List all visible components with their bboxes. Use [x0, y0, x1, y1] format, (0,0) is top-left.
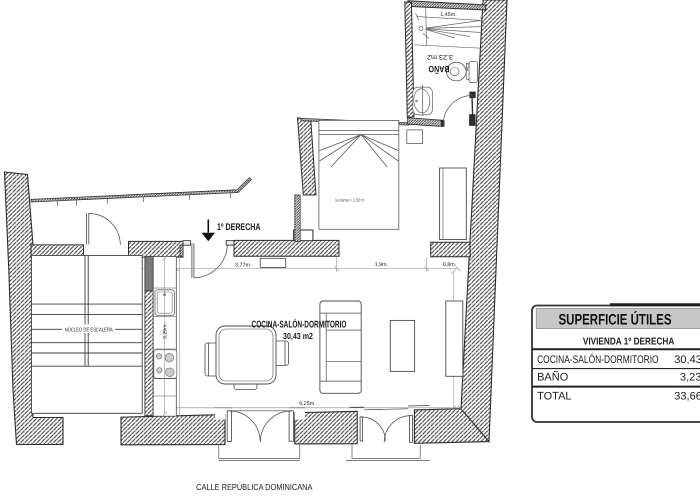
svg-text:30,43 m: 30,43 m	[674, 354, 700, 366]
svg-text:VIVIENDA 1º DERECHA: VIVIENDA 1º DERECHA	[583, 336, 675, 347]
svg-text:3,29m.: 3,29m.	[162, 323, 168, 339]
svg-text:33,66 m: 33,66 m	[674, 390, 700, 402]
svg-text:1,9m.: 1,9m.	[375, 262, 388, 268]
svg-text:BAÑO: BAÑO	[537, 371, 569, 384]
svg-text:1,45m.: 1,45m.	[440, 12, 456, 18]
svg-text:TOTAL: TOTAL	[537, 390, 571, 402]
svg-text:3,23 m: 3,23 m	[680, 372, 700, 384]
svg-text:CALLE REPÚBLICA DOMINICANA: CALLE REPÚBLICA DOMINICANA	[196, 482, 312, 492]
svg-text:COCINA-SALÓN-DORMITORIO: COCINA-SALÓN-DORMITORIO	[537, 353, 659, 366]
svg-text:COCINA-SALÓN-DORMITORIO: COCINA-SALÓN-DORMITORIO	[252, 319, 347, 331]
svg-text:3,23 m2: 3,23 m2	[427, 53, 453, 60]
svg-text:la cama = 1,50 m: la cama = 1,50 m	[336, 198, 365, 203]
svg-text:6,25m.: 6,25m.	[299, 401, 315, 407]
svg-text:3,77m.: 3,77m.	[235, 262, 251, 268]
svg-text:2,2m.: 2,2m.	[465, 62, 470, 72]
svg-text:0,8m.: 0,8m.	[443, 262, 456, 268]
svg-text:1º DERECHA: 1º DERECHA	[217, 222, 261, 233]
svg-text:SUPERFICIE ÚTILES: SUPERFICIE ÚTILES	[559, 310, 672, 328]
svg-text:NÚCLEO DE ESCALERA: NÚCLEO DE ESCALERA	[65, 327, 113, 334]
svg-text:BAÑO: BAÑO	[429, 64, 450, 75]
svg-text:30,43 m2: 30,43 m2	[283, 331, 313, 341]
